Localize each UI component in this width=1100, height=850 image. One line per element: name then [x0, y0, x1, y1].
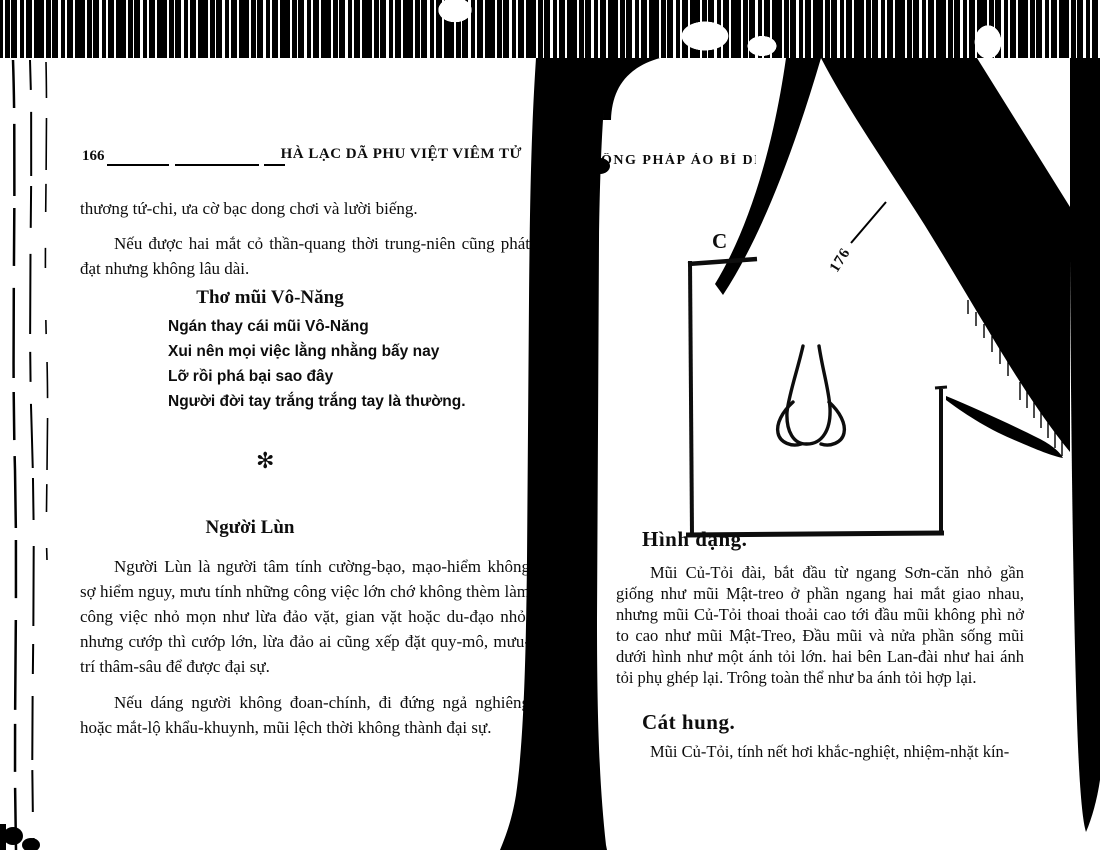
left-page-number: 166	[82, 148, 105, 165]
film-edge-strip	[0, 0, 1100, 58]
left-section-title: Người Lùn	[80, 517, 420, 539]
right-section-body-fortune-fragment: Mũi Củ-Tỏi, tính nết hơi khắc-nghiệt, nh…	[616, 741, 1024, 762]
scanned-book-spread: 166 HÀ LẠC DÃ PHU VIỆT VIÊM TỬ thương tứ…	[0, 0, 1100, 850]
nose-diagram-frame	[686, 259, 947, 536]
left-page-edge-lines	[13, 60, 48, 850]
bottom-left-ink-blobs	[0, 824, 40, 850]
figure-caption-fragment: C	[712, 229, 727, 254]
right-running-header-fragment: ỒNG PHÁP ẢO BÍ DIỆN	[601, 153, 756, 169]
edge-hatching	[968, 170, 1062, 456]
page-corner-fillet	[603, 58, 660, 120]
fold-shadow-sliver	[946, 396, 1063, 458]
poem-line-1: Ngán thay cái mũi Vô-Năng	[168, 318, 369, 336]
left-running-header: HÀ LẠC DÃ PHU VIỆT VIÊM TỬ	[280, 146, 522, 163]
poem-line-4: Người đời tay trắng trắng tay là thường.	[168, 393, 466, 411]
folded-corner-page-number: 176	[827, 245, 855, 276]
left-paragraph-2: Nếu được hai mắt cỏ thần-quang thời trun…	[80, 231, 530, 281]
poem-line-3: Lỡ rồi phá bại sao đây	[168, 368, 333, 386]
shadow-wedge-top-right	[821, 58, 1070, 452]
right-border-band	[1070, 58, 1100, 832]
left-section-paragraph-2: Nếu dáng người không đoan-chính, đi đứng…	[80, 690, 530, 740]
section-divider-ornament: ✻	[256, 448, 274, 474]
right-section-title-shape: Hình dạng.	[642, 527, 747, 552]
fold-crease-band	[715, 58, 821, 295]
nose-drawing	[778, 346, 845, 445]
left-section-paragraph-1: Người Lùn là người tâm tính cường-bạo, m…	[80, 554, 530, 679]
poem-title: Thơ mũi Vô-Năng	[80, 287, 460, 309]
poem-line-2: Xui nên mọi việc lằng nhằng bấy nay	[168, 343, 439, 361]
left-paragraph-continuation: thương tứ-chi, ưa cờ bạc dong chơi và lư…	[80, 196, 530, 221]
right-section-title-fortune: Cát hung.	[642, 710, 735, 735]
fold-page-number-line	[851, 202, 886, 243]
right-section-body-shape: Mũi Củ-Tỏi đài, bắt đầu từ ngang Sơn-căn…	[616, 562, 1024, 688]
